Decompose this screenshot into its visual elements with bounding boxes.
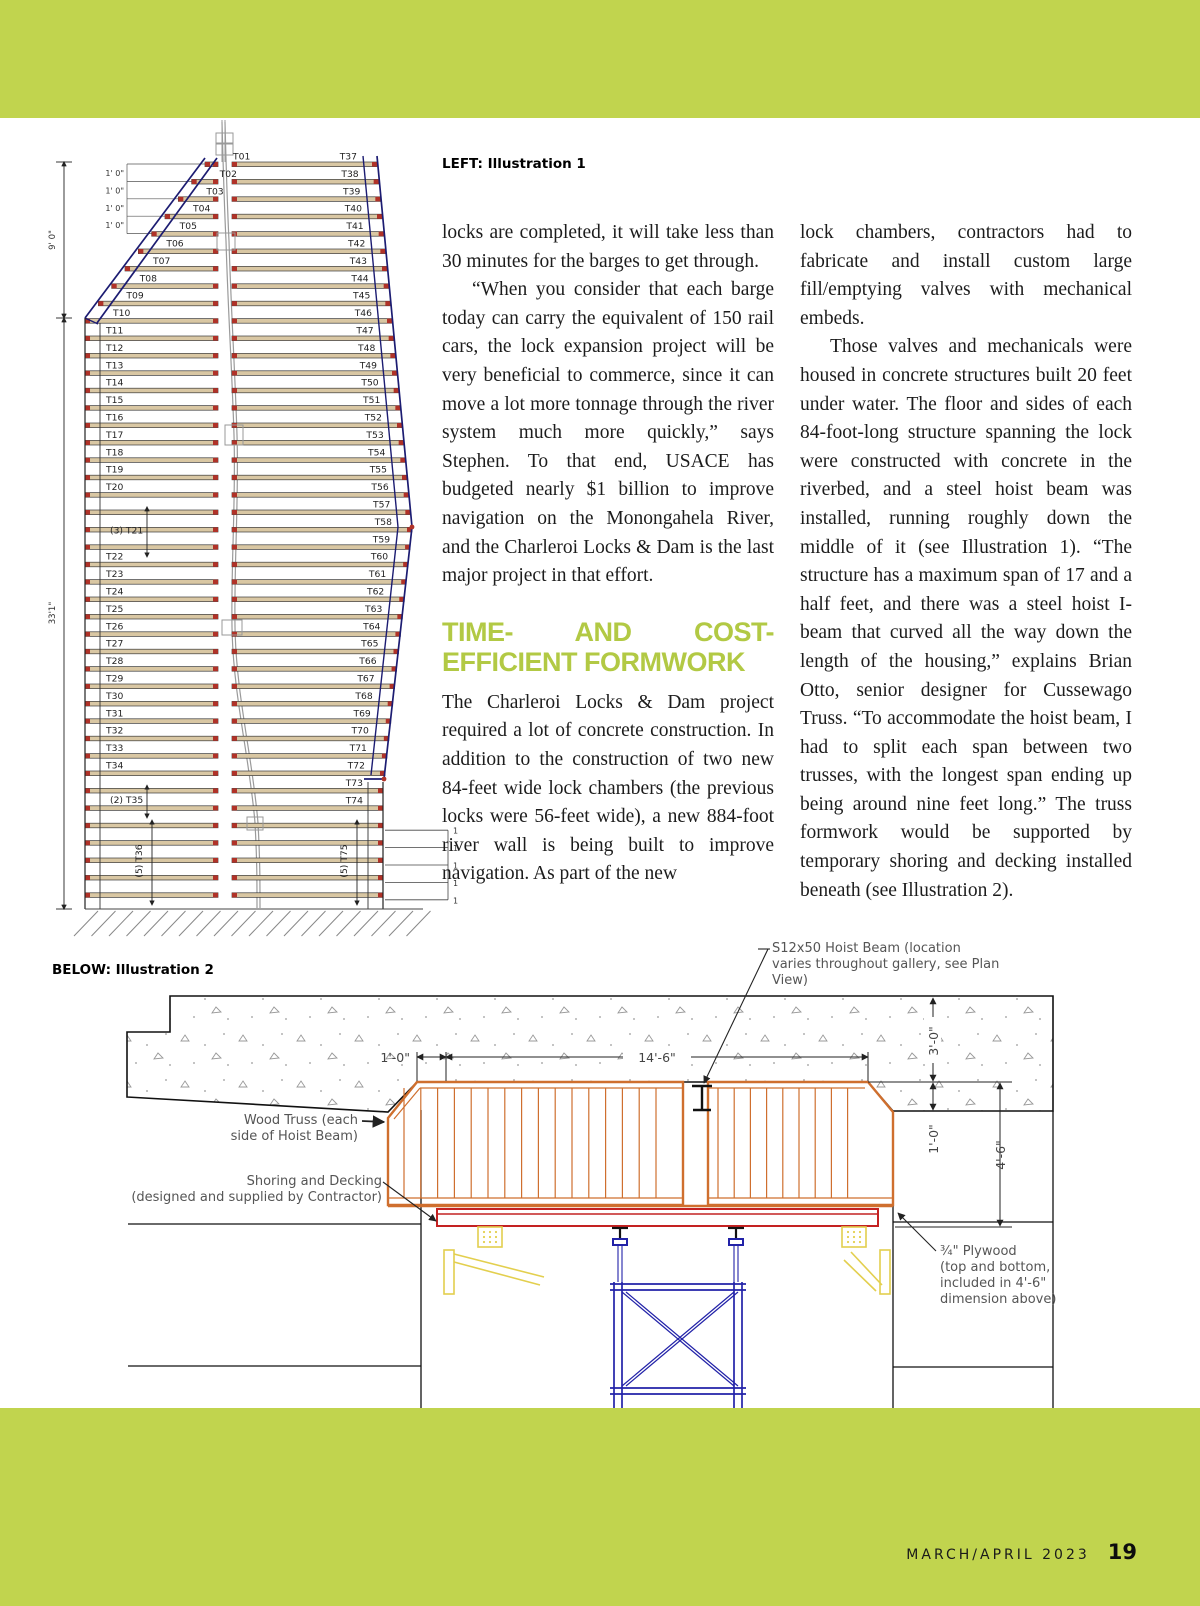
svg-text:T56: T56 bbox=[370, 482, 388, 493]
svg-text:T38: T38 bbox=[340, 169, 358, 180]
svg-text:T23: T23 bbox=[105, 569, 123, 580]
illustration-1-truss-plan: 9' 0"33'1"1' 0"1' 0"1' 0"1' 0"T01T02T03T… bbox=[40, 120, 470, 940]
wood-truss-label: side of Hoist Beam) bbox=[231, 1129, 358, 1144]
svg-text:T58: T58 bbox=[374, 517, 392, 528]
svg-text:T34: T34 bbox=[105, 761, 123, 772]
dim-offset: 1'-0" bbox=[380, 1050, 410, 1065]
bottom-color-band bbox=[0, 1408, 1200, 1606]
svg-text:T64: T64 bbox=[362, 621, 380, 632]
illustration-1-caption: LEFT: Illustration 1 bbox=[442, 156, 586, 172]
svg-text:T66: T66 bbox=[358, 656, 376, 667]
plywood-label: included in 4'-6" bbox=[940, 1276, 1046, 1291]
svg-text:T54: T54 bbox=[367, 447, 385, 458]
page-number: 19 bbox=[1108, 1540, 1137, 1564]
paragraph: locks are completed, it will take less t… bbox=[442, 219, 774, 276]
svg-text:T40: T40 bbox=[344, 204, 362, 215]
svg-text:T08: T08 bbox=[139, 273, 157, 284]
svg-text:T63: T63 bbox=[364, 604, 382, 615]
dim-ledge: 1'-0" bbox=[926, 1124, 941, 1154]
svg-text:T47: T47 bbox=[355, 326, 373, 337]
svg-text:T41: T41 bbox=[345, 221, 363, 232]
svg-text:T52: T52 bbox=[364, 413, 382, 424]
svg-text:T57: T57 bbox=[372, 500, 390, 511]
svg-text:T14: T14 bbox=[105, 378, 123, 389]
svg-text:T74: T74 bbox=[345, 795, 363, 806]
svg-text:T45: T45 bbox=[352, 291, 370, 302]
svg-text:T11: T11 bbox=[105, 326, 123, 337]
svg-text:T12: T12 bbox=[105, 343, 123, 354]
svg-text:T31: T31 bbox=[105, 708, 123, 719]
svg-text:1' 0": 1' 0" bbox=[105, 221, 124, 230]
hoist-beam-label: S12x50 Hoist Beam (location bbox=[772, 941, 961, 956]
svg-text:T30: T30 bbox=[105, 691, 123, 702]
svg-text:T68: T68 bbox=[354, 691, 372, 702]
svg-text:T03: T03 bbox=[205, 186, 223, 197]
issue-date: MARCH/APRIL 2023 bbox=[906, 1547, 1089, 1563]
svg-text:T71: T71 bbox=[349, 743, 367, 754]
svg-text:T48: T48 bbox=[357, 343, 375, 354]
plywood-label: ¾" Plywood bbox=[940, 1244, 1017, 1259]
svg-text:(2) T35: (2) T35 bbox=[110, 795, 143, 806]
hoist-beam-label: varies throughout gallery, see Plan bbox=[772, 957, 999, 972]
svg-text:9' 0": 9' 0" bbox=[48, 230, 58, 250]
dim-truss-height: 4'-6" bbox=[993, 1140, 1008, 1170]
svg-text:T18: T18 bbox=[105, 447, 123, 458]
svg-text:T62: T62 bbox=[366, 587, 384, 598]
shoring-tower bbox=[610, 1228, 746, 1408]
svg-text:T73: T73 bbox=[345, 778, 363, 789]
svg-text:T19: T19 bbox=[105, 465, 123, 476]
shoring-label: Shoring and Decking bbox=[247, 1174, 382, 1189]
article-column-1: locks are completed, it will take less t… bbox=[442, 219, 774, 889]
svg-text:T05: T05 bbox=[179, 221, 197, 232]
svg-text:1' 0": 1' 0" bbox=[105, 204, 124, 213]
svg-text:33'1": 33'1" bbox=[48, 602, 58, 625]
svg-text:(3) T21: (3) T21 bbox=[110, 525, 143, 536]
svg-text:T33: T33 bbox=[105, 743, 123, 754]
svg-text:T01: T01 bbox=[232, 152, 250, 163]
svg-text:T42: T42 bbox=[347, 239, 365, 250]
svg-text:T06: T06 bbox=[165, 239, 183, 250]
lock-wall-lines bbox=[128, 1110, 1053, 1408]
svg-text:T04: T04 bbox=[192, 204, 210, 215]
hoist-beam-label: View) bbox=[772, 973, 808, 988]
svg-text:(5) T75: (5) T75 bbox=[339, 844, 350, 877]
svg-text:(5) T36: (5) T36 bbox=[134, 844, 145, 877]
svg-text:T29: T29 bbox=[105, 674, 123, 685]
svg-text:T37: T37 bbox=[339, 152, 357, 163]
svg-text:T09: T09 bbox=[125, 291, 143, 302]
section-heading: TIME- AND COST-EFFICIENT FORMWORK bbox=[442, 617, 774, 677]
svg-text:T15: T15 bbox=[105, 395, 123, 406]
svg-text:T39: T39 bbox=[342, 186, 360, 197]
svg-text:T50: T50 bbox=[360, 378, 378, 389]
svg-text:T49: T49 bbox=[359, 360, 377, 371]
svg-text:T22: T22 bbox=[105, 552, 123, 563]
svg-text:T26: T26 bbox=[105, 621, 123, 632]
wood-truss bbox=[388, 1082, 893, 1206]
paragraph: “When you consider that each barge today… bbox=[442, 276, 774, 591]
svg-text:T07: T07 bbox=[152, 256, 170, 267]
shoring-label: (designed and supplied by Contractor) bbox=[131, 1190, 382, 1205]
svg-text:T67: T67 bbox=[356, 674, 374, 685]
svg-text:T53: T53 bbox=[365, 430, 383, 441]
svg-text:T70: T70 bbox=[351, 726, 369, 737]
svg-text:T13: T13 bbox=[105, 360, 123, 371]
svg-text:T32: T32 bbox=[105, 726, 123, 737]
svg-text:T44: T44 bbox=[350, 273, 368, 284]
plywood-label: dimension above) bbox=[940, 1292, 1056, 1307]
svg-text:T02: T02 bbox=[219, 169, 237, 180]
svg-text:T60: T60 bbox=[370, 552, 388, 563]
svg-text:T10: T10 bbox=[112, 308, 130, 319]
plywood-label: (top and bottom, bbox=[940, 1260, 1050, 1275]
paragraph: The Charleroi Locks & Dam project requir… bbox=[442, 689, 774, 889]
svg-text:T20: T20 bbox=[105, 482, 123, 493]
svg-text:T72: T72 bbox=[347, 761, 365, 772]
dim-depth: 3'-0" bbox=[926, 1026, 941, 1056]
paragraph: lock chambers, contractors had to fabric… bbox=[800, 219, 1132, 333]
svg-text:T51: T51 bbox=[362, 395, 380, 406]
svg-text:T59: T59 bbox=[372, 534, 390, 545]
beam-stubs bbox=[612, 1228, 744, 1239]
magazine-page: 9' 0"33'1"1' 0"1' 0"1' 0"1' 0"T01T02T03T… bbox=[0, 0, 1200, 1606]
dim-span: 14'-6" bbox=[638, 1050, 676, 1065]
top-color-band bbox=[0, 0, 1200, 118]
svg-text:1' 0": 1' 0" bbox=[105, 169, 124, 178]
concrete-slab bbox=[127, 996, 1053, 1112]
svg-text:T17: T17 bbox=[105, 430, 123, 441]
svg-text:1: 1 bbox=[453, 896, 458, 905]
svg-text:T25: T25 bbox=[105, 604, 123, 615]
svg-text:T46: T46 bbox=[354, 308, 372, 319]
svg-text:T61: T61 bbox=[368, 569, 386, 580]
svg-text:T69: T69 bbox=[352, 708, 370, 719]
article-column-2: lock chambers, contractors had to fabric… bbox=[800, 219, 1132, 905]
svg-text:T65: T65 bbox=[360, 639, 378, 650]
svg-text:1' 0": 1' 0" bbox=[105, 186, 124, 195]
svg-text:T43: T43 bbox=[349, 256, 367, 267]
svg-text:T16: T16 bbox=[105, 413, 123, 424]
page-footer: MARCH/APRIL 2023 19 bbox=[906, 1540, 1137, 1564]
wood-truss-label: Wood Truss (each bbox=[244, 1113, 358, 1128]
shoring-deck bbox=[437, 1209, 878, 1226]
paragraph: Those valves and mechanicals were housed… bbox=[800, 333, 1132, 905]
svg-text:T24: T24 bbox=[105, 587, 123, 598]
illustration-2-cross-section: S12x50 Hoist Beam (location varies throu… bbox=[120, 935, 1150, 1408]
svg-text:T55: T55 bbox=[369, 465, 387, 476]
svg-text:T28: T28 bbox=[105, 656, 123, 667]
svg-text:T27: T27 bbox=[105, 639, 123, 650]
